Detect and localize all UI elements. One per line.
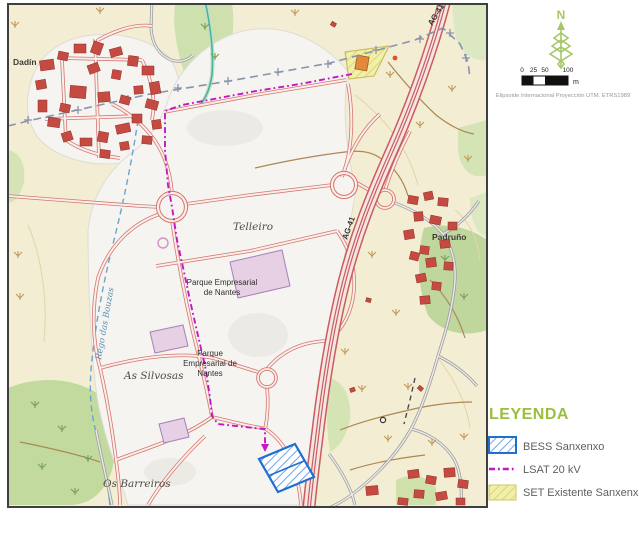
set-building bbox=[355, 55, 369, 71]
compass-north-label: N bbox=[557, 8, 566, 22]
legend-label-lsat: LSAT 20 kV bbox=[523, 464, 581, 476]
scale-tick-100: 100 bbox=[563, 67, 574, 74]
scale-tick-50: 50 bbox=[541, 67, 549, 74]
map-label-os-barreiros: Os Barreiros bbox=[103, 478, 171, 490]
poi-dot bbox=[393, 56, 398, 61]
map-label-telleiro: Telleiro bbox=[233, 221, 273, 233]
map-label-dadin: Dadín bbox=[13, 57, 37, 67]
legend-swatch-bess bbox=[489, 437, 516, 453]
scale-bar: 0 25 50 100 m Elipsoide Internacional Pr… bbox=[496, 67, 630, 99]
compass-rose: N bbox=[550, 8, 572, 68]
map-label-parque-b2: Empresarial de bbox=[183, 359, 237, 368]
map-label-parque-a1: Parque Empresarial bbox=[187, 278, 258, 287]
map-canvas: Dadín Telleiro Parque Empresarial de Nan… bbox=[0, 0, 639, 548]
legend-label-set: SET Existente Sanxenxo bbox=[523, 487, 639, 499]
legend: LEYENDA BESS Sanxenxo LSAT 20 kV SET Exi… bbox=[489, 406, 639, 500]
map-label-as-silvosas: As Silvosas bbox=[123, 370, 184, 382]
map-label-parque-b1: Parque bbox=[197, 349, 223, 358]
scale-tick-0: 0 bbox=[520, 67, 524, 74]
map-label-padruno: Padruño bbox=[432, 232, 466, 242]
legend-swatch-set bbox=[489, 485, 516, 500]
map-figure: { "map": { "labels": { "dadin": "Dadín",… bbox=[0, 0, 639, 548]
map-content: Dadín Telleiro Parque Empresarial de Nan… bbox=[8, 0, 487, 507]
scale-caption: Elipsoide Internacional Proyección UTM. … bbox=[496, 93, 630, 99]
map-label-parque-b3: Nantes bbox=[197, 369, 222, 378]
scale-unit: m bbox=[573, 79, 579, 86]
map-label-parque-a2: de Nantes bbox=[204, 288, 240, 297]
scale-tick-25: 25 bbox=[530, 67, 538, 74]
legend-title: LEYENDA bbox=[489, 406, 569, 423]
legend-label-bess: BESS Sanxenxo bbox=[523, 441, 604, 453]
